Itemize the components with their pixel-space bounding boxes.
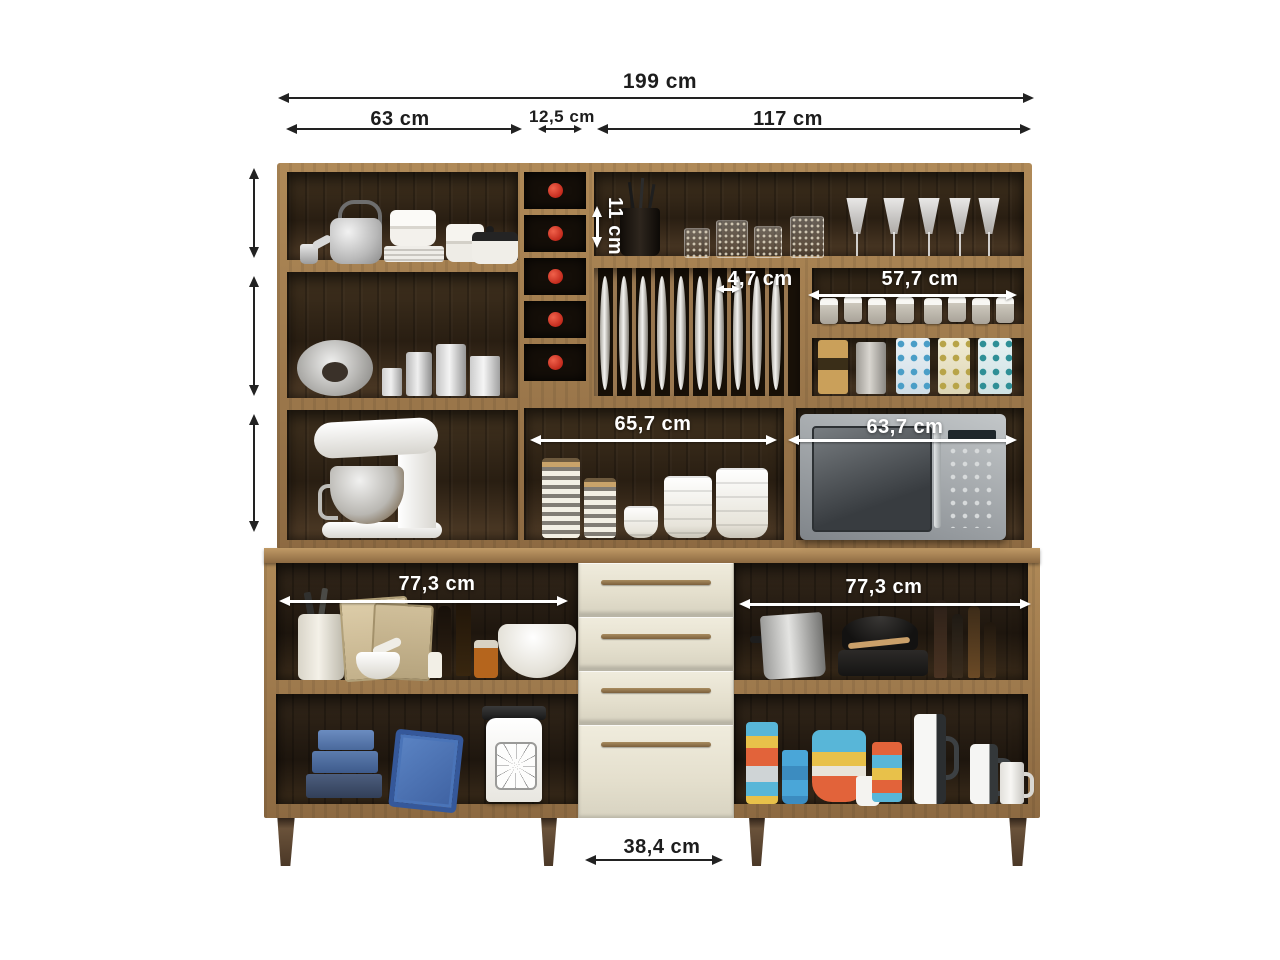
- wine-bottle-cap: [548, 183, 563, 198]
- blue-container: [306, 774, 382, 798]
- spice-jar: [996, 297, 1014, 323]
- drawer-handle: [601, 742, 711, 747]
- canister: [406, 352, 432, 396]
- cabinet-leg: [1006, 818, 1030, 866]
- plate: [733, 276, 743, 390]
- dim-drawer-width-label: 38,4 cm: [592, 836, 732, 858]
- spice-jar: [844, 296, 862, 322]
- dim-base-right-label: 77,3 cm: [814, 576, 954, 598]
- utensil-holder: [298, 614, 344, 680]
- grain-jar: [754, 226, 782, 258]
- scale-dial: [495, 742, 537, 790]
- wine-glass-stem: [959, 232, 961, 256]
- patterned-canister: [584, 478, 616, 538]
- drawer-4: [579, 725, 733, 818]
- mixer-arm: [313, 417, 439, 459]
- dim-microwave-niche-label: 63,7 cm: [835, 416, 975, 438]
- bowl-stack: [716, 468, 768, 538]
- wine-bottle-cap: [548, 226, 563, 241]
- salt-shaker: [428, 652, 442, 678]
- wine-glass-stem: [893, 232, 895, 256]
- bowl-stack: [664, 476, 712, 538]
- cup-stack: [390, 210, 436, 246]
- tin-can: [938, 338, 970, 394]
- small-metal-cup: [382, 368, 402, 396]
- drawer-3: [579, 671, 733, 722]
- dim-right-width-label: 117 cm: [718, 108, 858, 130]
- canister: [436, 344, 466, 396]
- plate: [771, 276, 781, 390]
- spice-jar: [820, 298, 838, 324]
- dim-left-width-label: 63 cm: [330, 108, 470, 130]
- drawer-handle: [601, 634, 711, 639]
- plate: [714, 276, 724, 390]
- pepper-grinder: [984, 622, 996, 678]
- wine-glass-stem: [928, 232, 930, 256]
- saucer-stack: [384, 246, 444, 262]
- plate: [619, 276, 629, 390]
- plate: [657, 276, 667, 390]
- pepper-grinder: [968, 606, 980, 678]
- blue-cups: [782, 750, 808, 804]
- wine-bottle-cap: [548, 312, 563, 327]
- tray-center-hole: [322, 362, 348, 382]
- spice-jar: [896, 297, 914, 323]
- drawer-handle: [601, 688, 711, 693]
- drawer-1: [579, 563, 733, 614]
- pepper-grinder: [952, 614, 963, 678]
- drawer-handle: [601, 580, 711, 585]
- pepper-grinder: [934, 600, 947, 678]
- blue-container: [318, 730, 374, 750]
- spice-jar: [972, 298, 990, 324]
- kettle: [330, 218, 382, 264]
- patterned-canister: [542, 458, 580, 538]
- tin-can: [856, 342, 886, 394]
- thermos: [914, 714, 946, 804]
- plate: [695, 276, 705, 390]
- small-bowl-stack: [624, 506, 658, 538]
- tin-can: [978, 338, 1012, 394]
- dim-niche-height-label: 11 cm: [604, 193, 626, 259]
- canister: [470, 356, 500, 396]
- wine-bottle-cap: [548, 355, 563, 370]
- utensil-crock: [620, 208, 660, 256]
- countertop: [264, 548, 1040, 563]
- plate: [752, 276, 762, 390]
- spice-jar: [924, 298, 942, 324]
- plate: [676, 276, 686, 390]
- thermos: [970, 744, 998, 804]
- frying-pan: [838, 650, 928, 676]
- grain-jar: [716, 220, 748, 258]
- blue-tray: [388, 729, 464, 814]
- dim-base-left-label: 77,3 cm: [367, 573, 507, 595]
- microwave-door: [812, 426, 932, 532]
- grain-jar: [684, 228, 710, 258]
- dim-center-niche-label: 65,7 cm: [583, 413, 723, 435]
- wine-glass-stem: [988, 232, 990, 256]
- grain-jar: [790, 216, 824, 258]
- drawer-2: [579, 617, 733, 668]
- spice-jar: [948, 296, 966, 322]
- cabinet-leg: [538, 818, 560, 866]
- tin-can: [818, 340, 848, 394]
- blue-container: [312, 751, 378, 773]
- plate: [638, 276, 648, 390]
- plate: [600, 276, 610, 390]
- oil-bottle: [456, 600, 471, 676]
- cabinet-leg: [274, 818, 298, 866]
- dim-total-width-label: 199 cm: [560, 70, 760, 93]
- wine-bottle-cap: [548, 269, 563, 284]
- white-mug: [1000, 762, 1024, 804]
- tin-can: [896, 338, 930, 394]
- stacked-cups: [746, 722, 778, 804]
- spice-jar: [868, 298, 886, 324]
- stock-pot: [760, 612, 826, 680]
- product-dimension-diagram: 199 cm 63 cm 12,5 cm 117 cm: [0, 0, 1280, 960]
- cabinet-leg: [746, 818, 768, 866]
- wine-glass-stem: [856, 232, 858, 256]
- microwave-buttons: [948, 446, 996, 528]
- dim-spice-shelf-label: 57,7 cm: [850, 268, 990, 290]
- pot: [472, 232, 518, 264]
- preserve-jar: [474, 640, 498, 678]
- stacked-cups: [872, 742, 902, 802]
